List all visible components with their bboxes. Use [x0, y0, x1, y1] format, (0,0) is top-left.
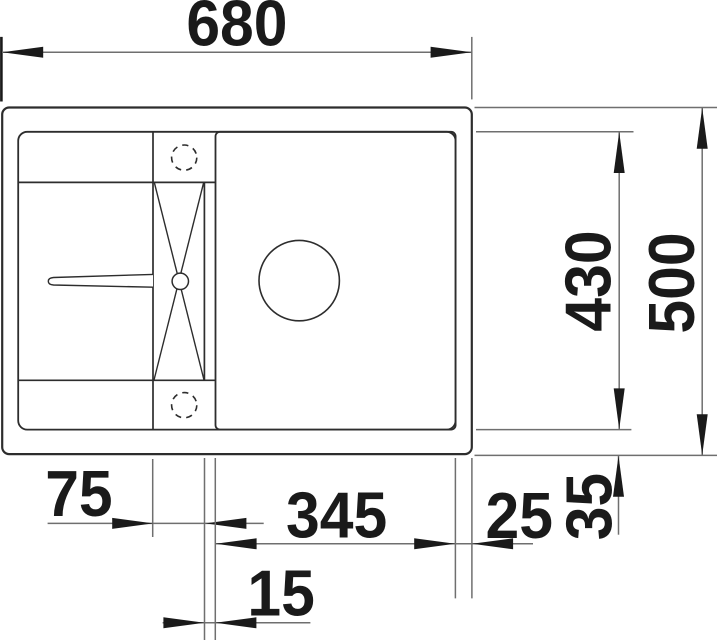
svg-text:15: 15	[247, 558, 314, 630]
svg-text:75: 75	[45, 458, 112, 530]
svg-text:25: 25	[485, 480, 552, 552]
svg-text:345: 345	[286, 480, 387, 552]
svg-text:35: 35	[554, 473, 626, 540]
svg-text:430: 430	[553, 230, 625, 331]
svg-text:680: 680	[186, 0, 287, 60]
svg-text:500: 500	[636, 232, 708, 333]
